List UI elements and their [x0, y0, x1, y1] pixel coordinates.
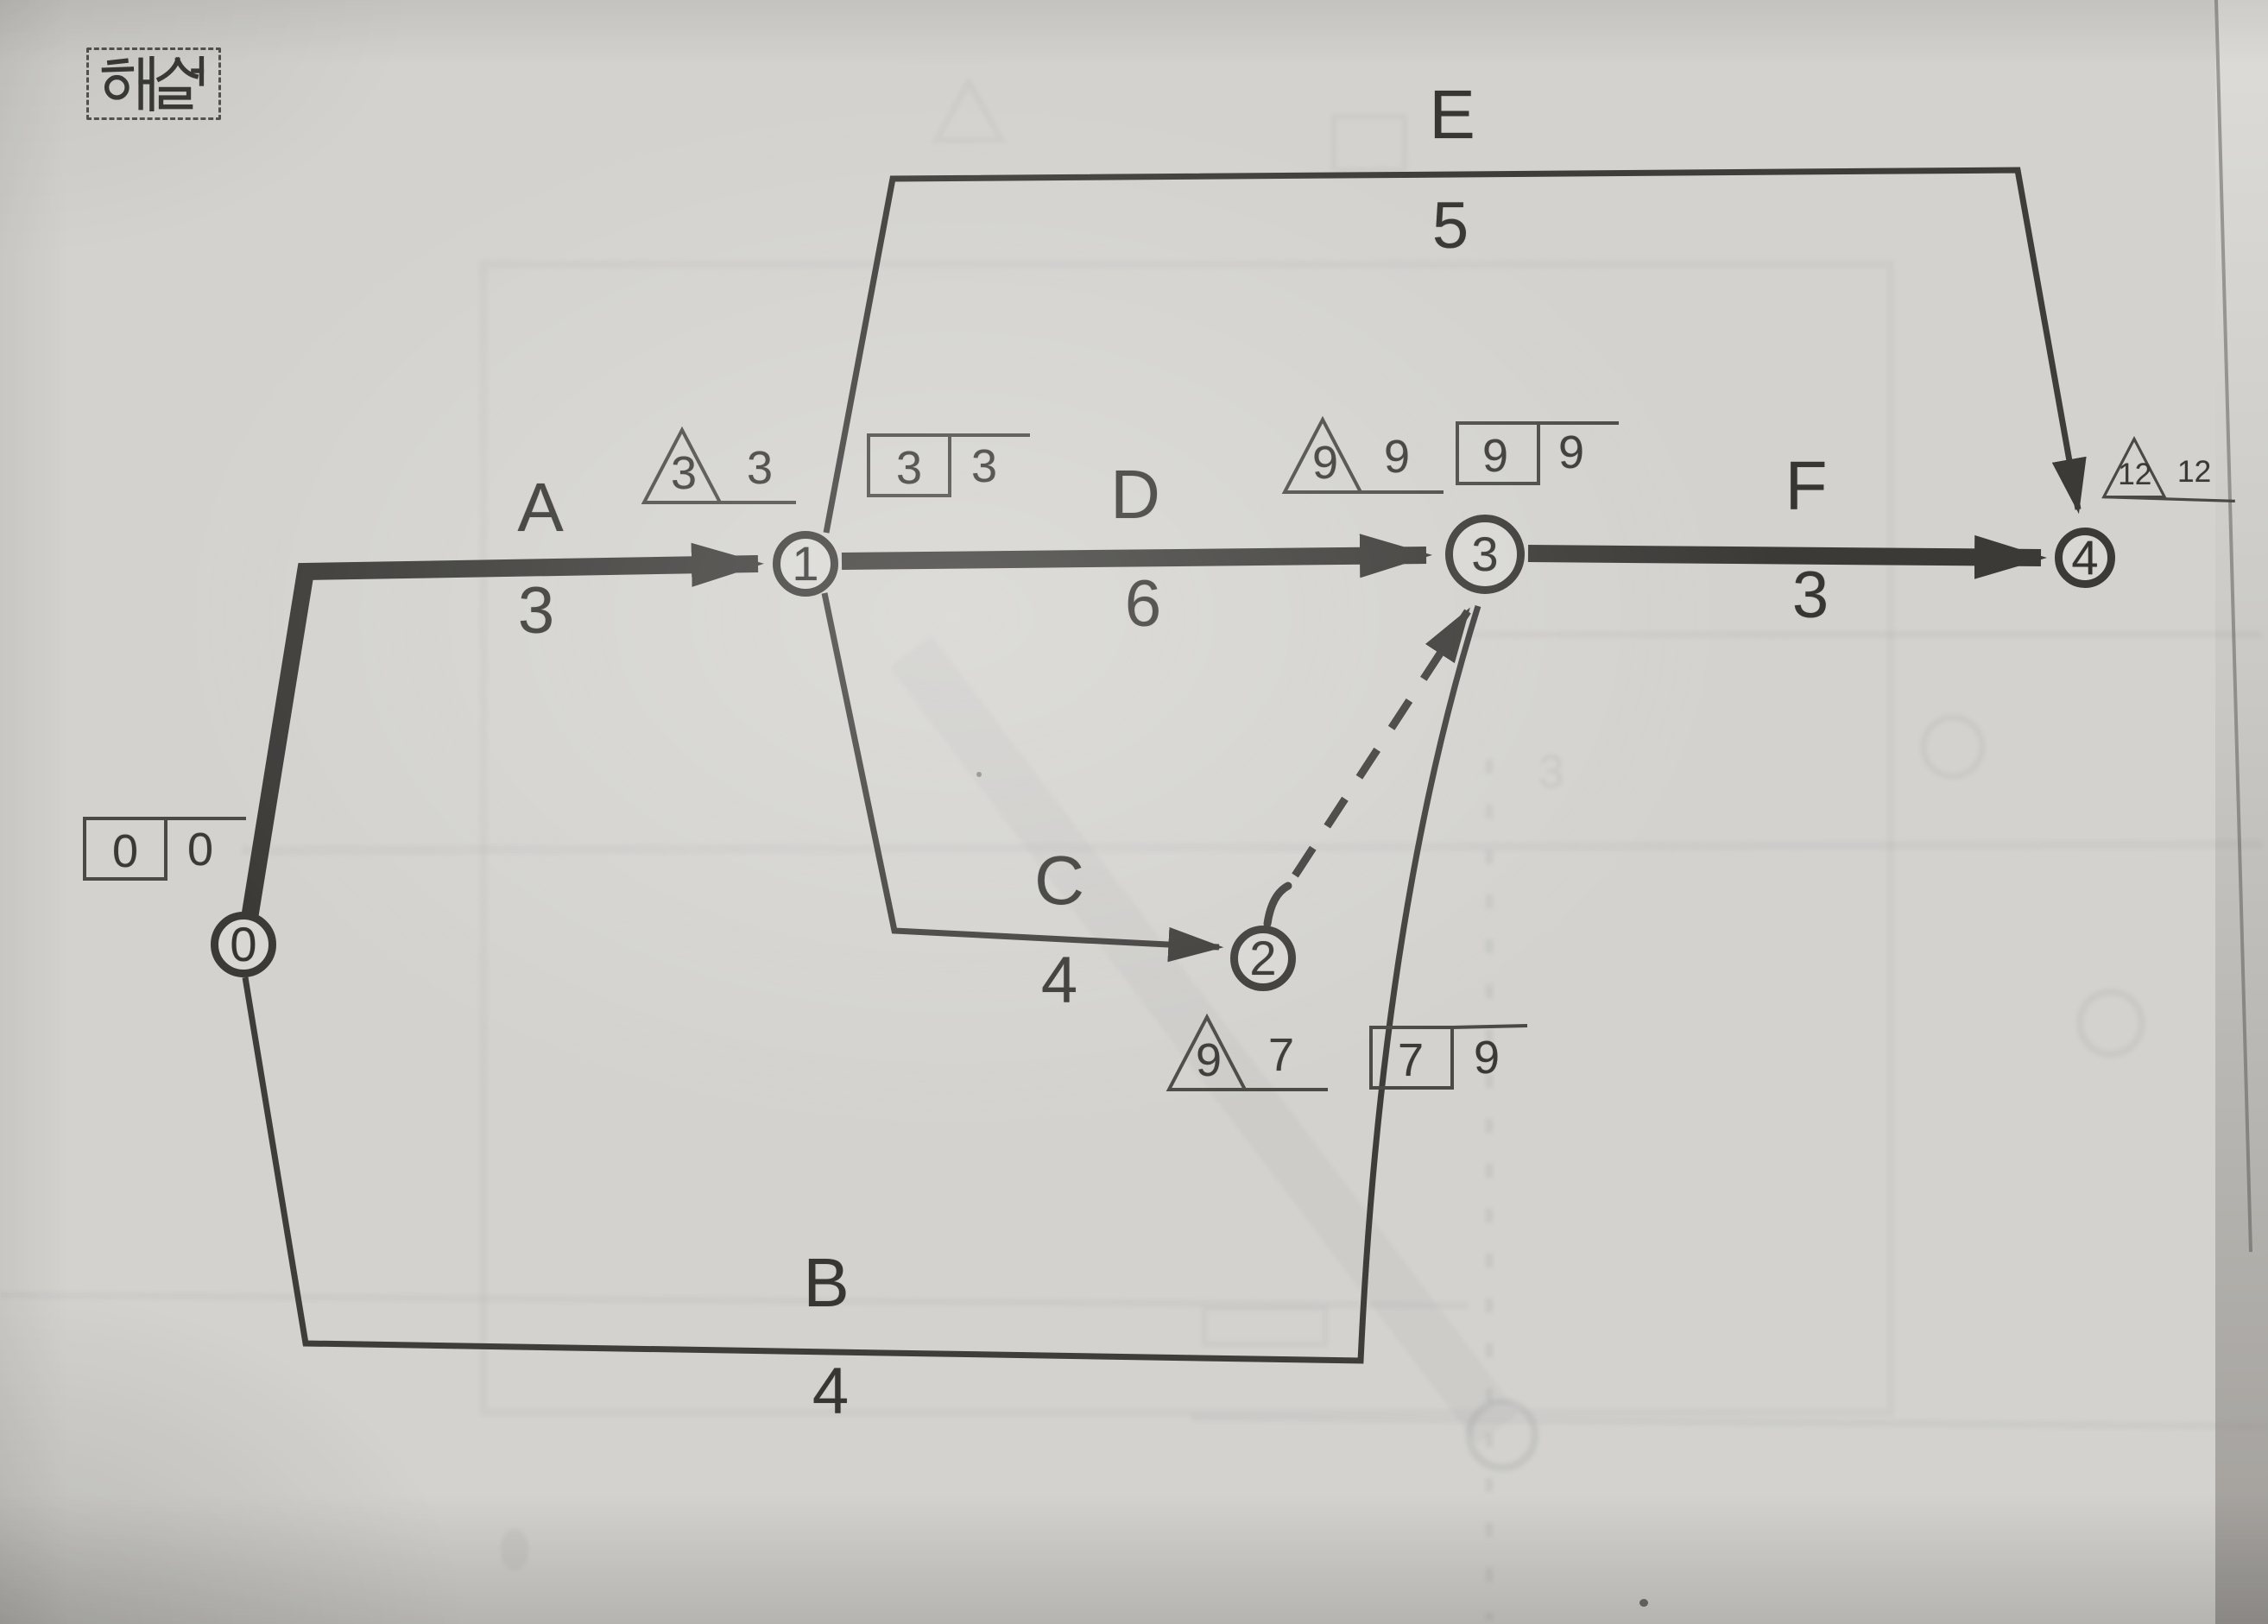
node-2-triangle-annotation: 9 7	[1164, 1010, 1336, 1096]
edge-B-line	[245, 606, 1478, 1361]
node-1-triangle-annotation: 3 3	[639, 423, 812, 509]
node-2-box-right-value: 9	[1474, 1034, 1500, 1081]
node-2-triangle-left-value: 9	[1196, 1037, 1222, 1084]
paper-speck	[1639, 1599, 1648, 1607]
node-4-triangle-left-value: 12	[2118, 459, 2151, 490]
edge-F-arrow	[1528, 553, 2041, 558]
node-4-label: 4	[2071, 534, 2098, 582]
edge-B-duration: 4	[812, 1359, 849, 1425]
node-0: 0	[211, 912, 276, 977]
node-0-box-left-value: 0	[112, 828, 138, 875]
edge-C-label: C	[1034, 846, 1084, 915]
node-4-triangle-right-value: 12	[2177, 457, 2211, 487]
edge-E-label: E	[1429, 80, 1475, 149]
node-1-box-annotation: 3 3	[863, 428, 1036, 515]
paper-speck	[976, 772, 982, 777]
node-3-triangle-annotation: 9 9	[1279, 413, 1452, 499]
node-2-triangle-right-value: 7	[1268, 1032, 1294, 1078]
node-3-label: 3	[1471, 530, 1498, 578]
svg-text:3: 3	[1538, 746, 1564, 798]
edge-A-arrow	[247, 564, 758, 934]
node-3-triangle-right-value: 9	[1384, 433, 1410, 480]
node-0-box-right-value: 0	[187, 826, 213, 873]
node-2: 2	[1230, 926, 1296, 991]
textbook-photo-page: 3 해설 0	[0, 0, 2268, 1624]
node-3: 3	[1445, 515, 1525, 594]
node-1-box-right-value: 3	[971, 443, 997, 490]
edge-D-duration: 6	[1125, 572, 1161, 637]
node-1-box-left-value: 3	[896, 445, 922, 491]
node-3-triangle-left-value: 9	[1312, 439, 1338, 486]
dummy-arrow-start-hook	[1267, 886, 1288, 924]
edge-F-duration: 3	[1792, 563, 1829, 629]
network-diagram-canvas: 3	[0, 0, 2268, 1624]
node-3-box-annotation: 9 9	[1452, 416, 1625, 502]
node-0-box-annotation: 0 0	[79, 812, 252, 898]
node-4: 4	[2055, 528, 2115, 588]
edge-E-duration: 5	[1432, 193, 1469, 259]
node-0-label: 0	[230, 920, 256, 969]
node-1-triangle-right-value: 3	[747, 445, 773, 491]
node-1-triangle-left-value: 3	[671, 450, 697, 496]
node-2-box-annotation: 7 9	[1366, 1021, 1538, 1107]
hangul-haeseol-glyphs	[98, 56, 209, 111]
explanation-tag: 해설	[86, 47, 221, 120]
edge-C-duration: 4	[1041, 948, 1077, 1014]
edge-F-label: F	[1785, 452, 1828, 521]
edge-B-label: B	[803, 1248, 849, 1318]
paper-edge-line	[2216, 0, 2251, 1252]
node-1-label: 1	[792, 540, 818, 588]
node-2-label: 2	[1249, 934, 1276, 983]
node-1: 1	[773, 531, 838, 597]
bleed-through-artifacts: 3	[0, 82, 2268, 1620]
edge-A-label: A	[517, 473, 563, 542]
node-4-triangle-annotation: 12 12	[2100, 433, 2238, 502]
edge-A-duration: 3	[518, 578, 554, 644]
node-3-box-right-value: 9	[1558, 429, 1584, 476]
edge-D-label: D	[1110, 460, 1160, 529]
node-3-box-left-value: 9	[1482, 433, 1508, 479]
edge-D-arrow	[842, 555, 1426, 561]
node-2-box-left-value: 7	[1398, 1037, 1424, 1084]
